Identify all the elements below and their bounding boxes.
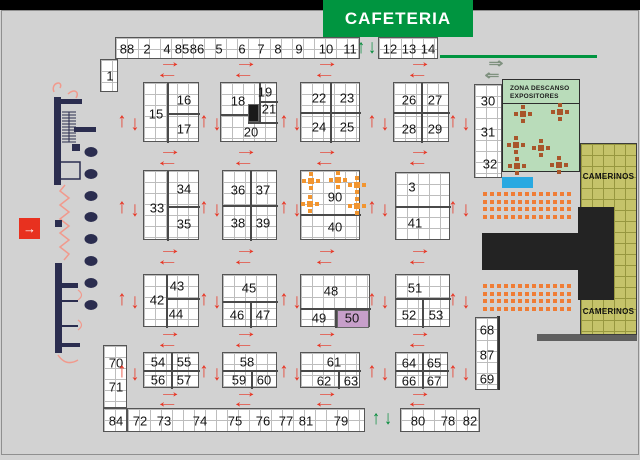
cafeteria-flow-arrow-icon: ⇐ bbox=[485, 69, 500, 82]
seat-dot bbox=[560, 200, 564, 204]
exhibitor-table-icon bbox=[354, 203, 360, 209]
booth-label: 78 bbox=[441, 415, 455, 428]
booth-label: 42 bbox=[150, 294, 164, 307]
seat-dot bbox=[560, 215, 564, 219]
booth-label: 39 bbox=[256, 217, 270, 230]
booth-label: 82 bbox=[463, 415, 477, 428]
seat-dot bbox=[483, 215, 487, 219]
rest-area: ZONA DESCANSO EXPOSITORES bbox=[502, 79, 580, 172]
seat-dot bbox=[511, 200, 515, 204]
booth-label: 48 bbox=[324, 285, 338, 298]
flow-arrow-left-icon: ← bbox=[405, 253, 429, 269]
seat-dot bbox=[539, 215, 543, 219]
flow-arrow-up-icon: ↑ bbox=[368, 360, 377, 381]
flow-arrow-left-icon: ← bbox=[231, 253, 255, 269]
seat-dot bbox=[567, 284, 571, 288]
top-wall-bar bbox=[0, 0, 640, 10]
booth-label: 1 bbox=[106, 70, 113, 83]
seat-dot bbox=[560, 299, 564, 303]
rest-area-table-icon bbox=[557, 109, 563, 115]
seat-dot bbox=[539, 284, 543, 288]
flow-arrow-down-icon: ↓ bbox=[462, 363, 471, 384]
booth-divider bbox=[301, 214, 361, 216]
booth-label: 9 bbox=[295, 43, 302, 56]
rest-area-table-icon bbox=[520, 111, 526, 117]
seat-dot bbox=[525, 215, 529, 219]
rest-area-table-icon bbox=[514, 163, 520, 169]
seat-dot bbox=[518, 200, 522, 204]
booth-label: 68 bbox=[480, 324, 494, 337]
wall-lower-line1 bbox=[62, 300, 78, 302]
flow-arrow-left-icon: ← bbox=[231, 336, 255, 352]
booth-label: 61 bbox=[327, 356, 341, 369]
booth-label: 25 bbox=[340, 121, 354, 134]
flow-arrow-up-icon: ↑ bbox=[280, 196, 289, 217]
seat-dot bbox=[490, 192, 494, 196]
booth-label: 26 bbox=[402, 94, 416, 107]
flow-arrow-down-icon: ↓ bbox=[131, 113, 140, 134]
flow-arrow-up-icon: ↑ bbox=[280, 288, 289, 309]
flow-arrow-down-icon: ↓ bbox=[213, 113, 222, 134]
wall-lower-line2 bbox=[62, 325, 78, 327]
seat-dot bbox=[518, 292, 522, 296]
booth-label: 87 bbox=[480, 349, 494, 362]
seat-dot bbox=[532, 207, 536, 211]
rest-area-table-icon bbox=[513, 142, 519, 148]
seat-dot bbox=[518, 207, 522, 211]
flow-arrow-down-icon: ↓ bbox=[462, 199, 471, 220]
flow-arrow-up-icon: ↑ bbox=[200, 110, 209, 131]
rest-area-title: ZONA DESCANSO EXPOSITORES bbox=[510, 85, 569, 101]
seat-dot bbox=[546, 284, 550, 288]
seat-dot bbox=[525, 192, 529, 196]
booth-label: 73 bbox=[157, 415, 171, 428]
wall-upper-bar bbox=[54, 99, 82, 104]
column-dots bbox=[85, 147, 98, 310]
flow-arrow-up-icon: ↑ bbox=[280, 360, 289, 381]
seat-dot bbox=[483, 207, 487, 211]
seat-dot bbox=[504, 307, 508, 311]
room-outline bbox=[60, 162, 80, 179]
flow-arrow-left-icon: ← bbox=[155, 154, 179, 170]
booth-label: 80 bbox=[411, 415, 425, 428]
booth-divider bbox=[166, 275, 168, 328]
seat-dot bbox=[567, 299, 571, 303]
booth-divider bbox=[223, 205, 278, 207]
booth-label: 64 bbox=[402, 357, 416, 370]
flow-arrow-left-icon: ← bbox=[312, 253, 336, 269]
booth-label: 77 bbox=[279, 415, 293, 428]
booth-label: 35 bbox=[177, 218, 191, 231]
booth-label: 23 bbox=[340, 92, 354, 105]
booth-label: 90 bbox=[328, 191, 342, 204]
booth-block-36: 36373839 bbox=[222, 170, 277, 240]
cafeteria-banner: CAFETERIA bbox=[323, 0, 473, 37]
booth-label: 52 bbox=[402, 309, 416, 322]
flow-arrow-down-icon: ↓ bbox=[462, 291, 471, 312]
seat-dot bbox=[483, 307, 487, 311]
booth-label: 37 bbox=[256, 184, 270, 197]
seat-dot bbox=[539, 207, 543, 211]
seat-dot bbox=[539, 299, 543, 303]
exhibitor-table-icon bbox=[308, 178, 314, 184]
flow-arrow-left-icon: ← bbox=[312, 154, 336, 170]
booth-label: 53 bbox=[429, 309, 443, 322]
seat-dot bbox=[518, 307, 522, 311]
building-structure bbox=[40, 78, 100, 368]
booth-label: 76 bbox=[256, 415, 270, 428]
booth-label: 2 bbox=[143, 43, 150, 56]
booth-divider bbox=[221, 114, 248, 116]
seat-dot bbox=[490, 207, 494, 211]
seat-dot bbox=[553, 200, 557, 204]
flow-arrow-left-icon: ← bbox=[405, 154, 429, 170]
flow-arrow-down-icon: ↓ bbox=[213, 363, 222, 384]
rest-area-divider bbox=[503, 103, 579, 104]
flow-arrow-down-icon: ↓ bbox=[213, 291, 222, 312]
seat-dot bbox=[560, 207, 564, 211]
booth-block-61: 616263 bbox=[300, 352, 360, 388]
seat-dot bbox=[567, 207, 571, 211]
booth-label: 5 bbox=[215, 43, 222, 56]
seat-dot bbox=[490, 292, 494, 296]
wall-post bbox=[55, 220, 62, 227]
booth-divider bbox=[301, 112, 361, 114]
booth-label: 19 bbox=[258, 86, 272, 99]
booth-label: 50 bbox=[345, 312, 359, 325]
seat-dot bbox=[518, 192, 522, 196]
seat-dot bbox=[546, 307, 550, 311]
blue-zone bbox=[502, 177, 533, 188]
seat-dot bbox=[497, 207, 501, 211]
decorative-squiggle-bottom bbox=[58, 355, 78, 363]
seat-dot bbox=[511, 299, 515, 303]
seat-dot bbox=[560, 307, 564, 311]
booth-block-54: 54555657 bbox=[143, 352, 199, 388]
entrance-icon: → bbox=[19, 218, 40, 239]
seat-dot bbox=[504, 284, 508, 288]
flow-arrow-up-icon: ↑ bbox=[368, 196, 377, 217]
seat-dot bbox=[497, 200, 501, 204]
booth-label: 81 bbox=[299, 415, 313, 428]
exhibitor-table-icon bbox=[335, 177, 341, 183]
seat-dot bbox=[525, 292, 529, 296]
flow-arrow-down-icon: ↓ bbox=[381, 363, 390, 384]
seat-dot bbox=[504, 200, 508, 204]
booth-label: 17 bbox=[177, 123, 191, 136]
flow-arrow-down-icon: ↓ bbox=[381, 199, 390, 220]
flow-arrow-down-icon: ↓ bbox=[293, 291, 302, 312]
seat-dot bbox=[546, 200, 550, 204]
booth-block-18: 18192120 bbox=[220, 82, 277, 142]
rest-area-table-icon bbox=[538, 145, 544, 151]
flow-arrow-up-icon: ↑ bbox=[449, 110, 458, 131]
booth-strip-corner-84: 84 bbox=[103, 408, 127, 432]
seat-dot bbox=[504, 292, 508, 296]
seat-dot bbox=[483, 299, 487, 303]
booth-label: 60 bbox=[257, 374, 271, 387]
seat-dot bbox=[532, 284, 536, 288]
seat-dot bbox=[511, 292, 515, 296]
seat-dot bbox=[546, 292, 550, 296]
seat-dot bbox=[504, 207, 508, 211]
seat-dot bbox=[560, 292, 564, 296]
seat-dot bbox=[525, 299, 529, 303]
seat-dot bbox=[567, 215, 571, 219]
booth-label: 44 bbox=[169, 308, 183, 321]
rest-area-title-line1: ZONA DESCANSO bbox=[510, 85, 569, 93]
door-arcs bbox=[78, 290, 82, 330]
booth-label: 32 bbox=[483, 158, 497, 171]
seat-dot bbox=[497, 299, 501, 303]
seat-dot bbox=[532, 299, 536, 303]
seat-dot bbox=[483, 284, 487, 288]
flow-arrow-left-icon: ← bbox=[312, 336, 336, 352]
booth-label: 38 bbox=[231, 217, 245, 230]
seat-dot bbox=[511, 307, 515, 311]
flow-arrow-up-icon: ↑ bbox=[368, 288, 377, 309]
seat-dot bbox=[567, 200, 571, 204]
booth-label: 51 bbox=[408, 282, 422, 295]
seat-dot bbox=[560, 284, 564, 288]
camerinos-label-top: CAMERINOS bbox=[581, 172, 636, 181]
seat-dot bbox=[525, 284, 529, 288]
seat-dot bbox=[490, 307, 494, 311]
booth-block-90: 9040 bbox=[300, 170, 360, 240]
booth-block-33: 333435 bbox=[143, 170, 199, 240]
seat-dot bbox=[553, 207, 557, 211]
booth-label: 29 bbox=[428, 123, 442, 136]
seat-dot bbox=[553, 307, 557, 311]
seat-dot bbox=[518, 299, 522, 303]
wall-lower-bar bbox=[62, 283, 78, 288]
flow-arrow-up-icon: ↑ bbox=[449, 196, 458, 217]
seat-dot bbox=[546, 299, 550, 303]
flow-arrow-left-icon: ← bbox=[312, 395, 336, 411]
booth-block-58: 585960 bbox=[222, 352, 277, 388]
decorative-squiggle-top bbox=[53, 83, 77, 98]
flow-arrow-down-icon: ↓ bbox=[131, 291, 140, 312]
booth-label: 15 bbox=[149, 108, 163, 121]
booth-label: 72 bbox=[133, 415, 147, 428]
booth-label: 3 bbox=[408, 181, 415, 194]
flow-arrow-left-icon: ← bbox=[155, 66, 179, 82]
seat-dot bbox=[539, 200, 543, 204]
flow-arrow-down-icon: ↓ bbox=[131, 363, 140, 384]
seat-dot bbox=[553, 299, 557, 303]
flow-arrow-left-icon: ← bbox=[155, 253, 179, 269]
flow-arrow-left-icon: ← bbox=[405, 66, 429, 82]
flow-arrow-up-icon: ↑ bbox=[118, 196, 127, 217]
flow-arrow-down-icon: ↓ bbox=[293, 363, 302, 384]
booth-label: 18 bbox=[231, 95, 245, 108]
seat-dot bbox=[553, 284, 557, 288]
camerinos-label-bottom: CAMERINOS bbox=[581, 307, 636, 316]
seat-dot bbox=[511, 207, 515, 211]
seat-dot bbox=[532, 292, 536, 296]
booth-label: 16 bbox=[177, 94, 191, 107]
flow-arrow-down-icon: ↓ bbox=[131, 199, 140, 220]
flow-arrow-down-icon: ↓ bbox=[381, 113, 390, 134]
entrance-arrow-glyph: → bbox=[23, 221, 36, 236]
stage-body bbox=[578, 207, 614, 300]
flow-arrow-up-icon: ↑ bbox=[368, 110, 377, 131]
wall-block bbox=[72, 144, 80, 151]
seat-dot bbox=[532, 192, 536, 196]
seat-dot bbox=[532, 200, 536, 204]
booth-divider bbox=[167, 206, 200, 208]
seat-dot bbox=[504, 215, 508, 219]
seat-dot bbox=[532, 215, 536, 219]
booth-label: 71 bbox=[109, 381, 123, 394]
cafeteria-label: CAFETERIA bbox=[345, 9, 451, 29]
flow-arrow-up-icon: ↑ bbox=[118, 288, 127, 309]
booth-label: 75 bbox=[228, 415, 242, 428]
booth-strip-bottom-left: 7273747576778179 bbox=[127, 408, 365, 432]
wall-segment bbox=[537, 334, 637, 341]
seat-dot bbox=[546, 192, 550, 196]
flow-arrow-up-icon: ↑ bbox=[118, 360, 127, 381]
seat-dot bbox=[490, 200, 494, 204]
flow-arrow-left-icon: ← bbox=[231, 66, 255, 82]
booth-label: 43 bbox=[170, 280, 184, 293]
booth-label: 34 bbox=[177, 183, 191, 196]
flow-arrow-left-icon: ← bbox=[231, 395, 255, 411]
seat-dot bbox=[525, 200, 529, 204]
booth-label: 11 bbox=[343, 43, 357, 56]
booth-label: 8 bbox=[274, 43, 281, 56]
booth-label: 65 bbox=[427, 357, 441, 370]
seat-dot bbox=[497, 284, 501, 288]
wall-lower-foot bbox=[62, 343, 80, 347]
booth-label: 88 bbox=[120, 43, 134, 56]
flow-arrow-up-icon: ↑ bbox=[280, 110, 289, 131]
flow-arrow-left-icon: ← bbox=[405, 395, 429, 411]
wall-mid-bar bbox=[74, 127, 96, 132]
booth-label: 55 bbox=[177, 356, 191, 369]
seat-dot bbox=[518, 284, 522, 288]
seat-dot bbox=[504, 299, 508, 303]
exhibitor-table-icon bbox=[307, 201, 313, 207]
booth-label: 21 bbox=[262, 103, 276, 116]
seat-dot bbox=[497, 292, 501, 296]
entrance-arrow-up-icon: ↑ bbox=[357, 38, 365, 57]
booth-strip-booth-1: 1 bbox=[100, 59, 118, 92]
seat-dot bbox=[539, 292, 543, 296]
booth-block-51: 515253 bbox=[395, 274, 450, 327]
stage-arm bbox=[482, 233, 582, 270]
booth-block-22: 22232425 bbox=[300, 82, 360, 142]
booth-label: 86 bbox=[190, 43, 204, 56]
seat-dot bbox=[511, 215, 515, 219]
booth-label: 69 bbox=[480, 373, 494, 386]
flow-arrow-up-icon: ↑ bbox=[118, 110, 127, 131]
seat-dot bbox=[525, 207, 529, 211]
booth-label: 27 bbox=[428, 94, 442, 107]
booth-strip-right-68: 688769 bbox=[475, 317, 498, 390]
exhibitor-table-icon bbox=[354, 182, 360, 188]
booth-label: 36 bbox=[231, 184, 245, 197]
booth-label: 74 bbox=[193, 415, 207, 428]
seat-dot bbox=[490, 299, 494, 303]
booth-divider bbox=[166, 298, 200, 300]
seat-dot bbox=[567, 307, 571, 311]
cafeteria-wall bbox=[440, 55, 597, 58]
booth-strip-right-30: 303132 bbox=[474, 84, 502, 178]
booth-block-45: 454647 bbox=[222, 274, 277, 327]
booth-label: 28 bbox=[402, 123, 416, 136]
entrance-arrow-up-icon: ↑ bbox=[372, 409, 380, 428]
booth-label: 33 bbox=[150, 202, 164, 215]
highlight-cell bbox=[248, 104, 259, 122]
booth-divider bbox=[301, 370, 361, 372]
seat-dot bbox=[553, 215, 557, 219]
booth-label: 63 bbox=[344, 375, 358, 388]
entrance-arrow-down-icon: ↓ bbox=[368, 38, 376, 57]
seat-dot bbox=[504, 192, 508, 196]
booth-divider bbox=[394, 112, 450, 114]
flow-arrow-left-icon: ← bbox=[312, 66, 336, 82]
seat-dot bbox=[511, 192, 515, 196]
seat-dot bbox=[525, 307, 529, 311]
flow-arrow-up-icon: ↑ bbox=[449, 360, 458, 381]
booth-label: 84 bbox=[109, 415, 123, 428]
booth-block-48: 484950 bbox=[300, 274, 370, 327]
booth-block-26: 26272829 bbox=[393, 82, 449, 142]
seat-dot bbox=[553, 292, 557, 296]
flow-arrow-left-icon: ← bbox=[155, 336, 179, 352]
booth-label: 7 bbox=[257, 43, 264, 56]
flow-arrow-down-icon: ↓ bbox=[213, 199, 222, 220]
flow-arrow-down-icon: ↓ bbox=[462, 113, 471, 134]
seat-dot bbox=[567, 192, 571, 196]
seat-dot bbox=[490, 284, 494, 288]
flow-arrow-down-icon: ↓ bbox=[293, 199, 302, 220]
seat-dot bbox=[497, 307, 501, 311]
flow-arrow-left-icon: ← bbox=[155, 395, 179, 411]
booth-block-64: 64656667 bbox=[395, 352, 448, 388]
booth-label: 40 bbox=[328, 221, 342, 234]
seat-dot bbox=[483, 200, 487, 204]
booth-label: 54 bbox=[151, 356, 165, 369]
booth-label: 12 bbox=[383, 43, 397, 56]
flow-arrow-left-icon: ← bbox=[231, 154, 255, 170]
booth-label: 20 bbox=[244, 126, 258, 139]
flow-arrow-up-icon: ↑ bbox=[200, 288, 209, 309]
floor-canvas: CAFETERIA ZONA DESCANSO EXPOSITORES CAME… bbox=[0, 0, 640, 460]
seat-dot bbox=[560, 192, 564, 196]
booth-label: 47 bbox=[256, 309, 270, 322]
booth-label: 49 bbox=[312, 312, 326, 325]
booth-block-42: 424344 bbox=[143, 274, 199, 327]
flow-arrow-up-icon: ↑ bbox=[200, 360, 209, 381]
seat-dot bbox=[497, 192, 501, 196]
booth-block-15: 151617 bbox=[143, 82, 199, 142]
seat-dot bbox=[567, 292, 571, 296]
rest-area-title-line2: EXPOSITORES bbox=[510, 93, 569, 101]
seat-dot bbox=[553, 192, 557, 196]
seat-dot bbox=[539, 192, 543, 196]
seat-dot bbox=[497, 215, 501, 219]
rest-area-table-icon bbox=[556, 162, 562, 168]
seat-dot bbox=[539, 307, 543, 311]
seat-dot bbox=[490, 215, 494, 219]
booth-label: 45 bbox=[242, 282, 256, 295]
seat-dot bbox=[546, 215, 550, 219]
seat-dot bbox=[511, 284, 515, 288]
booth-divider bbox=[396, 206, 451, 208]
booth-label: 46 bbox=[230, 309, 244, 322]
